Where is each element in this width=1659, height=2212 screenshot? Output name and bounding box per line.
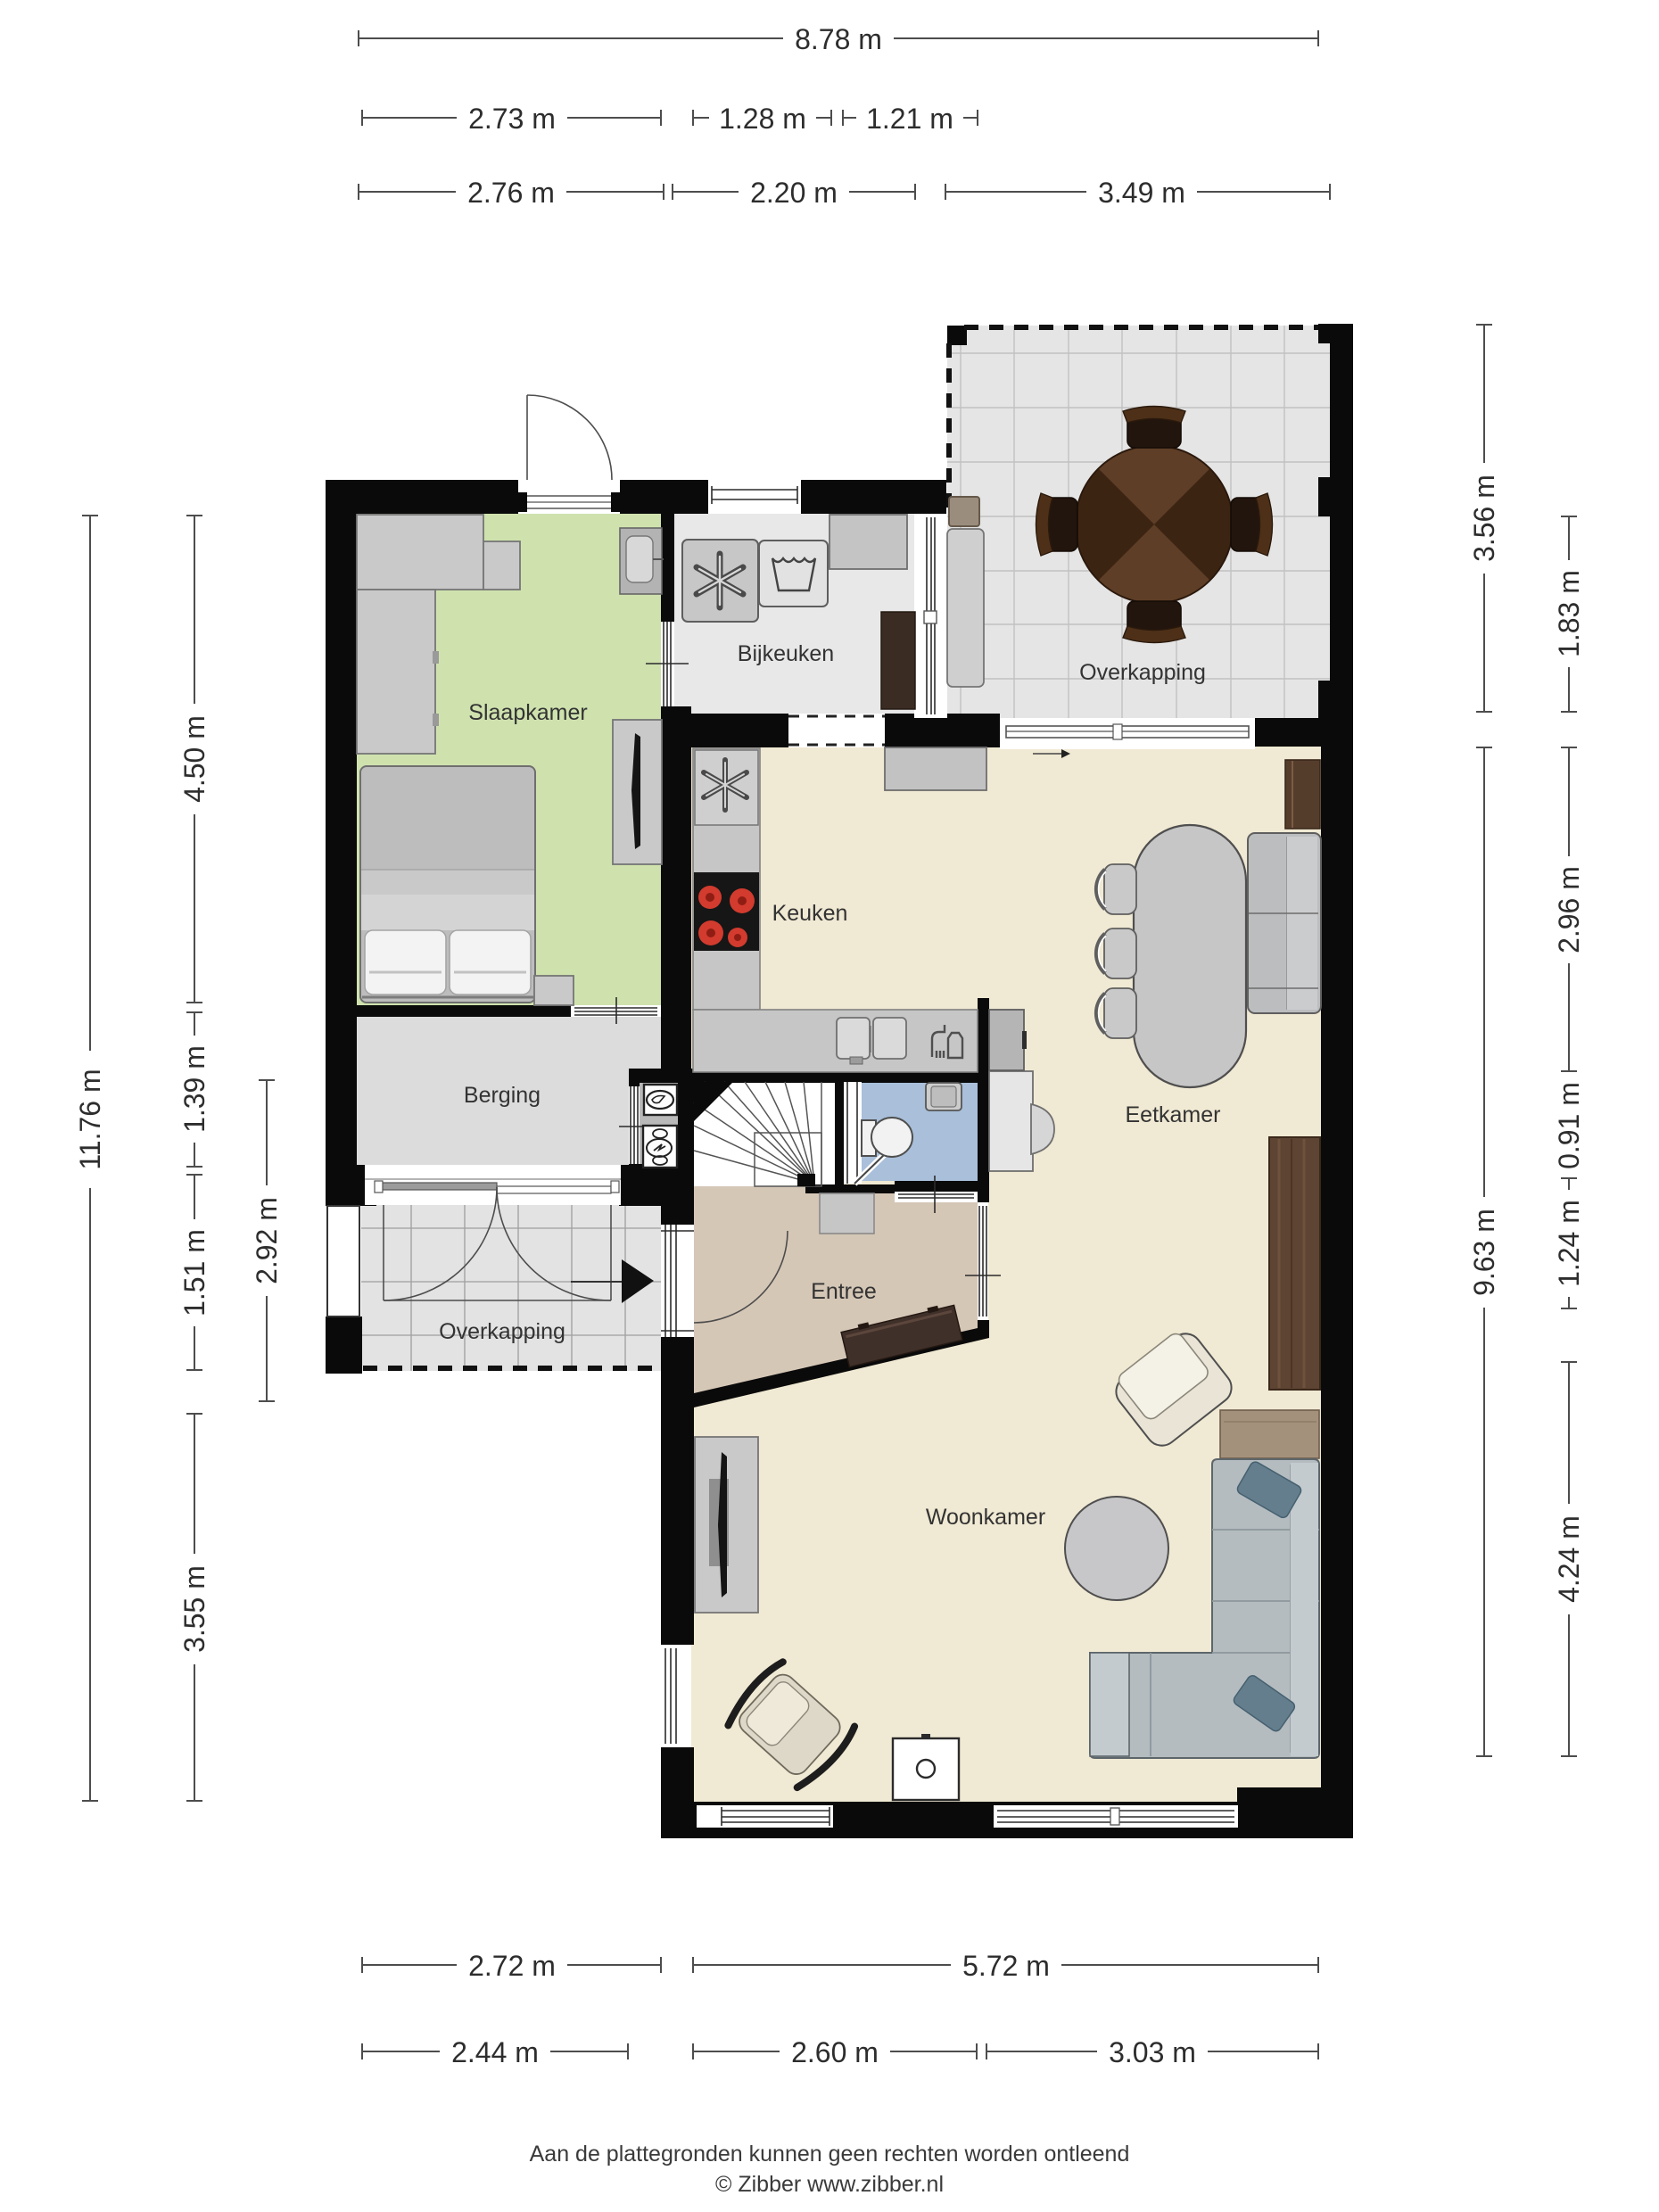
svg-text:0.91 m: 0.91 m (1553, 1082, 1585, 1169)
svg-text:2.60 m: 2.60 m (791, 2036, 879, 2068)
svg-text:Bijkeuken: Bijkeuken (738, 641, 834, 666)
svg-text:1.24 m: 1.24 m (1553, 1200, 1585, 1287)
svg-text:Slaapkamer: Slaapkamer (468, 700, 587, 725)
svg-text:9.63 m: 9.63 m (1468, 1209, 1500, 1296)
svg-text:2.92 m: 2.92 m (251, 1197, 283, 1284)
svg-text:2.76 m: 2.76 m (467, 177, 555, 209)
svg-text:Eetkamer: Eetkamer (1126, 1102, 1221, 1127)
svg-text:8.78 m: 8.78 m (795, 23, 882, 55)
svg-text:Keuken: Keuken (772, 901, 848, 926)
svg-text:2.20 m: 2.20 m (750, 177, 838, 209)
svg-text:4.24 m: 4.24 m (1553, 1515, 1585, 1603)
svg-text:Overkapping: Overkapping (1079, 660, 1206, 685)
svg-text:© Zibber www.zibber.nl: © Zibber www.zibber.nl (715, 2172, 944, 2197)
svg-text:1.39 m: 1.39 m (178, 1045, 210, 1133)
svg-text:2.44 m: 2.44 m (451, 2036, 539, 2068)
svg-text:2.73 m: 2.73 m (468, 103, 556, 135)
svg-text:3.03 m: 3.03 m (1109, 2036, 1196, 2068)
svg-text:1.51 m: 1.51 m (178, 1229, 210, 1316)
svg-text:3.55 m: 3.55 m (178, 1565, 210, 1653)
svg-text:2.72 m: 2.72 m (468, 1950, 556, 1982)
svg-text:5.72 m: 5.72 m (962, 1950, 1050, 1982)
svg-text:11.76 m: 11.76 m (74, 1069, 106, 1169)
svg-text:1.28 m: 1.28 m (719, 103, 806, 135)
svg-text:Overkapping: Overkapping (439, 1319, 565, 1344)
svg-text:Entree: Entree (811, 1279, 877, 1304)
svg-text:1.21 m: 1.21 m (866, 103, 953, 135)
svg-text:Woonkamer: Woonkamer (926, 1505, 1045, 1530)
svg-text:Berging: Berging (464, 1083, 541, 1108)
svg-text:3.56 m: 3.56 m (1468, 475, 1500, 562)
svg-text:Aan de plattegronden kunnen ge: Aan de plattegronden kunnen geen rechten… (530, 2142, 1130, 2167)
svg-text:1.83 m: 1.83 m (1553, 570, 1585, 657)
svg-text:2.96 m: 2.96 m (1553, 866, 1585, 953)
svg-text:3.49 m: 3.49 m (1098, 177, 1185, 209)
svg-text:4.50 m: 4.50 m (178, 715, 210, 803)
